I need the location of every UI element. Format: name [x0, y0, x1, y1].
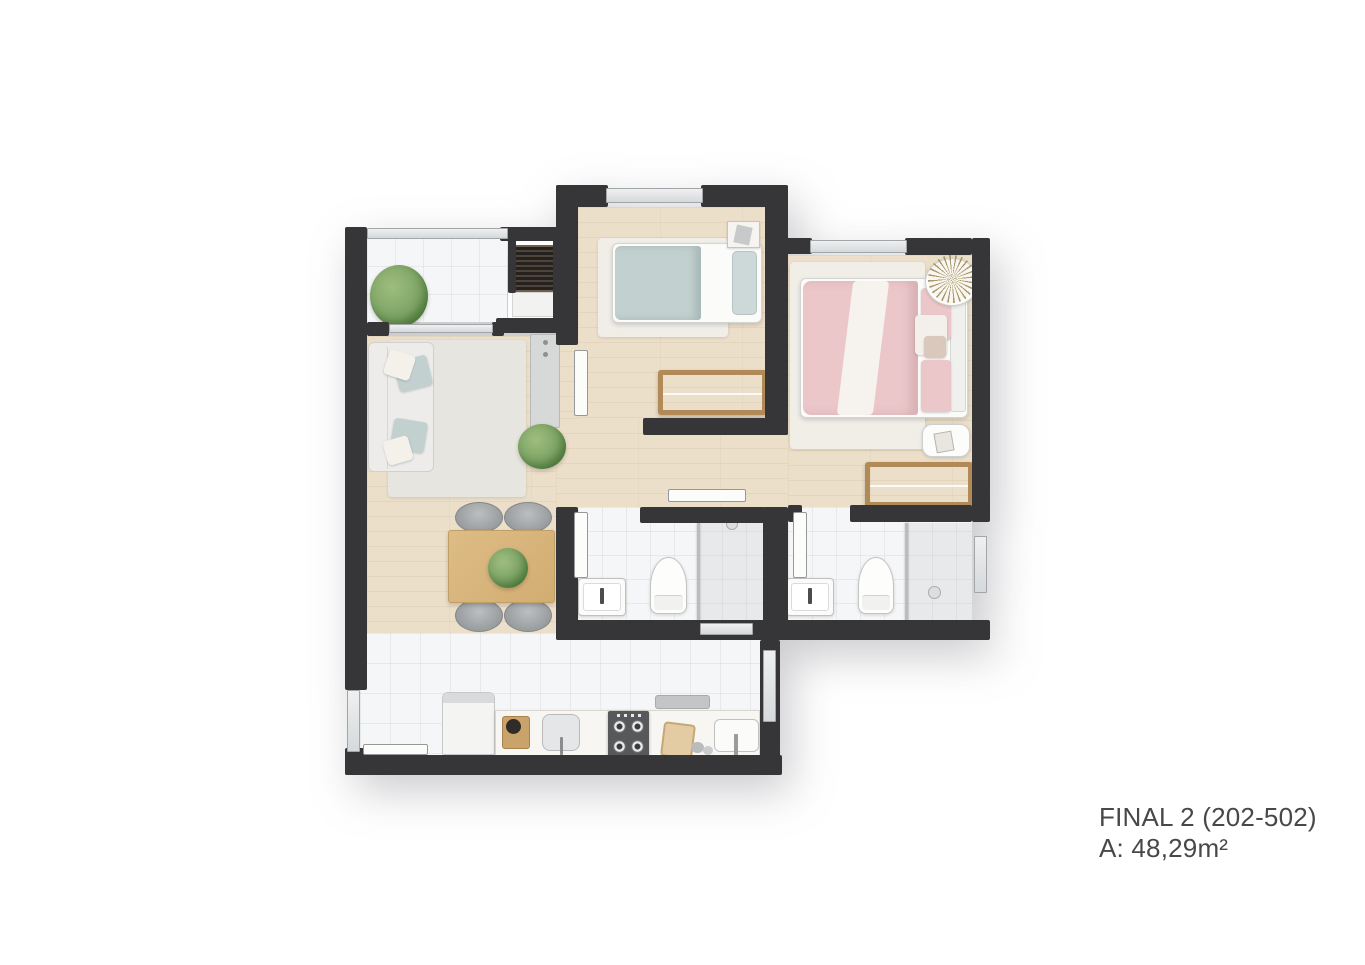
table-centerpiece: [488, 548, 528, 588]
burner: [631, 720, 644, 733]
living-plant: [518, 424, 566, 469]
bedroom1-left-wall: [556, 185, 578, 345]
bedroom2-window: [810, 240, 907, 253]
plan-area: A: 48,29m²: [1099, 833, 1359, 864]
bowl: [691, 742, 704, 753]
shower1-floor: [700, 523, 763, 621]
burner: [613, 740, 626, 753]
toilet-tank: [862, 595, 891, 610]
bedroom2-top-wall: [905, 238, 972, 255]
sink-tap: [600, 588, 604, 604]
dining-chair: [504, 599, 552, 632]
bowl: [703, 746, 713, 755]
laundry-tank: [714, 719, 759, 752]
wall-frame: [727, 221, 760, 248]
bathroom2-sink: [786, 578, 834, 616]
shower2-glass-divider: [905, 523, 908, 620]
plan-title: FINAL 2 (202-502): [1099, 802, 1359, 833]
bedroom1-window: [606, 188, 703, 203]
bathrooms-bottom-wall: [556, 620, 990, 640]
stove-knobs: [617, 714, 641, 717]
fridge-top: [443, 693, 494, 703]
balcony-plant: [370, 265, 428, 327]
bathroom2-toilet: [858, 557, 894, 614]
bathroom1-sink: [578, 578, 626, 616]
bedroom1-door-leaf: [574, 350, 588, 416]
single-bed-blanket: [615, 246, 701, 320]
frame-picture: [733, 225, 752, 246]
ac-shelf: [512, 292, 556, 317]
nightstand-books: [933, 431, 954, 454]
kettle: [506, 719, 521, 734]
ac-condenser-unit: [511, 245, 557, 292]
range-hood: [655, 695, 710, 709]
nightstand: [922, 424, 970, 457]
fridge: [442, 692, 495, 755]
bedroom2-bottom-wall: [850, 505, 972, 522]
sideboard-knob: [543, 340, 548, 345]
living-top-wall: [367, 322, 389, 336]
bed-pillow: [921, 360, 951, 412]
bathroom1-top-wall: [640, 507, 765, 523]
shower1-glass-divider: [697, 523, 700, 620]
cooktop: [608, 711, 649, 758]
sideboard-knob: [543, 352, 548, 357]
bedroom2-door-leaf: [668, 489, 746, 502]
bedroom2-right-wall: [972, 238, 990, 522]
balcony-sliding-door: [389, 324, 493, 333]
single-bed-pillow: [732, 251, 757, 315]
dining-chair: [455, 502, 503, 533]
kitchen-faucet: [560, 737, 563, 755]
bedroom1-bottom-wall: [643, 418, 788, 435]
kitchen-sink: [542, 714, 580, 751]
shower2-head: [928, 586, 941, 599]
burner: [631, 740, 644, 753]
bathroom1-toilet: [650, 557, 687, 614]
clothes-rail: [870, 485, 968, 487]
bathroom1-door-leaf: [574, 512, 588, 578]
service-glass-door: [347, 690, 360, 752]
living-top-wall: [492, 322, 504, 336]
bathroom1-window: [700, 623, 753, 635]
dried-plant: [928, 255, 976, 303]
sink-tap: [808, 588, 812, 604]
service-door-leaf: [363, 744, 428, 755]
ac-niche-wall: [508, 227, 516, 293]
bedroom2-clothes-rack: [865, 462, 973, 507]
bottom-exterior-wall: [345, 755, 782, 775]
tv-sideboard: [530, 334, 560, 428]
bedroom-divider-wall: [765, 185, 788, 435]
toilet-tank: [654, 595, 683, 610]
plan-label: FINAL 2 (202-502) A: 48,29m²: [1099, 802, 1359, 864]
shower2-floor: [908, 523, 972, 621]
bathroom2-door-leaf: [793, 512, 807, 578]
bathroom2-window: [974, 536, 987, 593]
dining-chair: [455, 599, 503, 632]
bedroom1-clothes-rack: [658, 370, 767, 415]
bedroom1-top-wall: [556, 185, 608, 207]
clothes-rail: [663, 393, 762, 395]
burner: [613, 720, 626, 733]
bed-pillow: [924, 336, 946, 358]
floor-plan-canvas: FINAL 2 (202-502) A: 48,29m²: [0, 0, 1365, 965]
dining-chair: [504, 502, 552, 533]
kitchen-window: [763, 650, 776, 722]
bedroom2-top-wall: [775, 238, 812, 254]
left-exterior-wall: [345, 227, 367, 690]
balcony-railing-glass: [367, 228, 508, 239]
